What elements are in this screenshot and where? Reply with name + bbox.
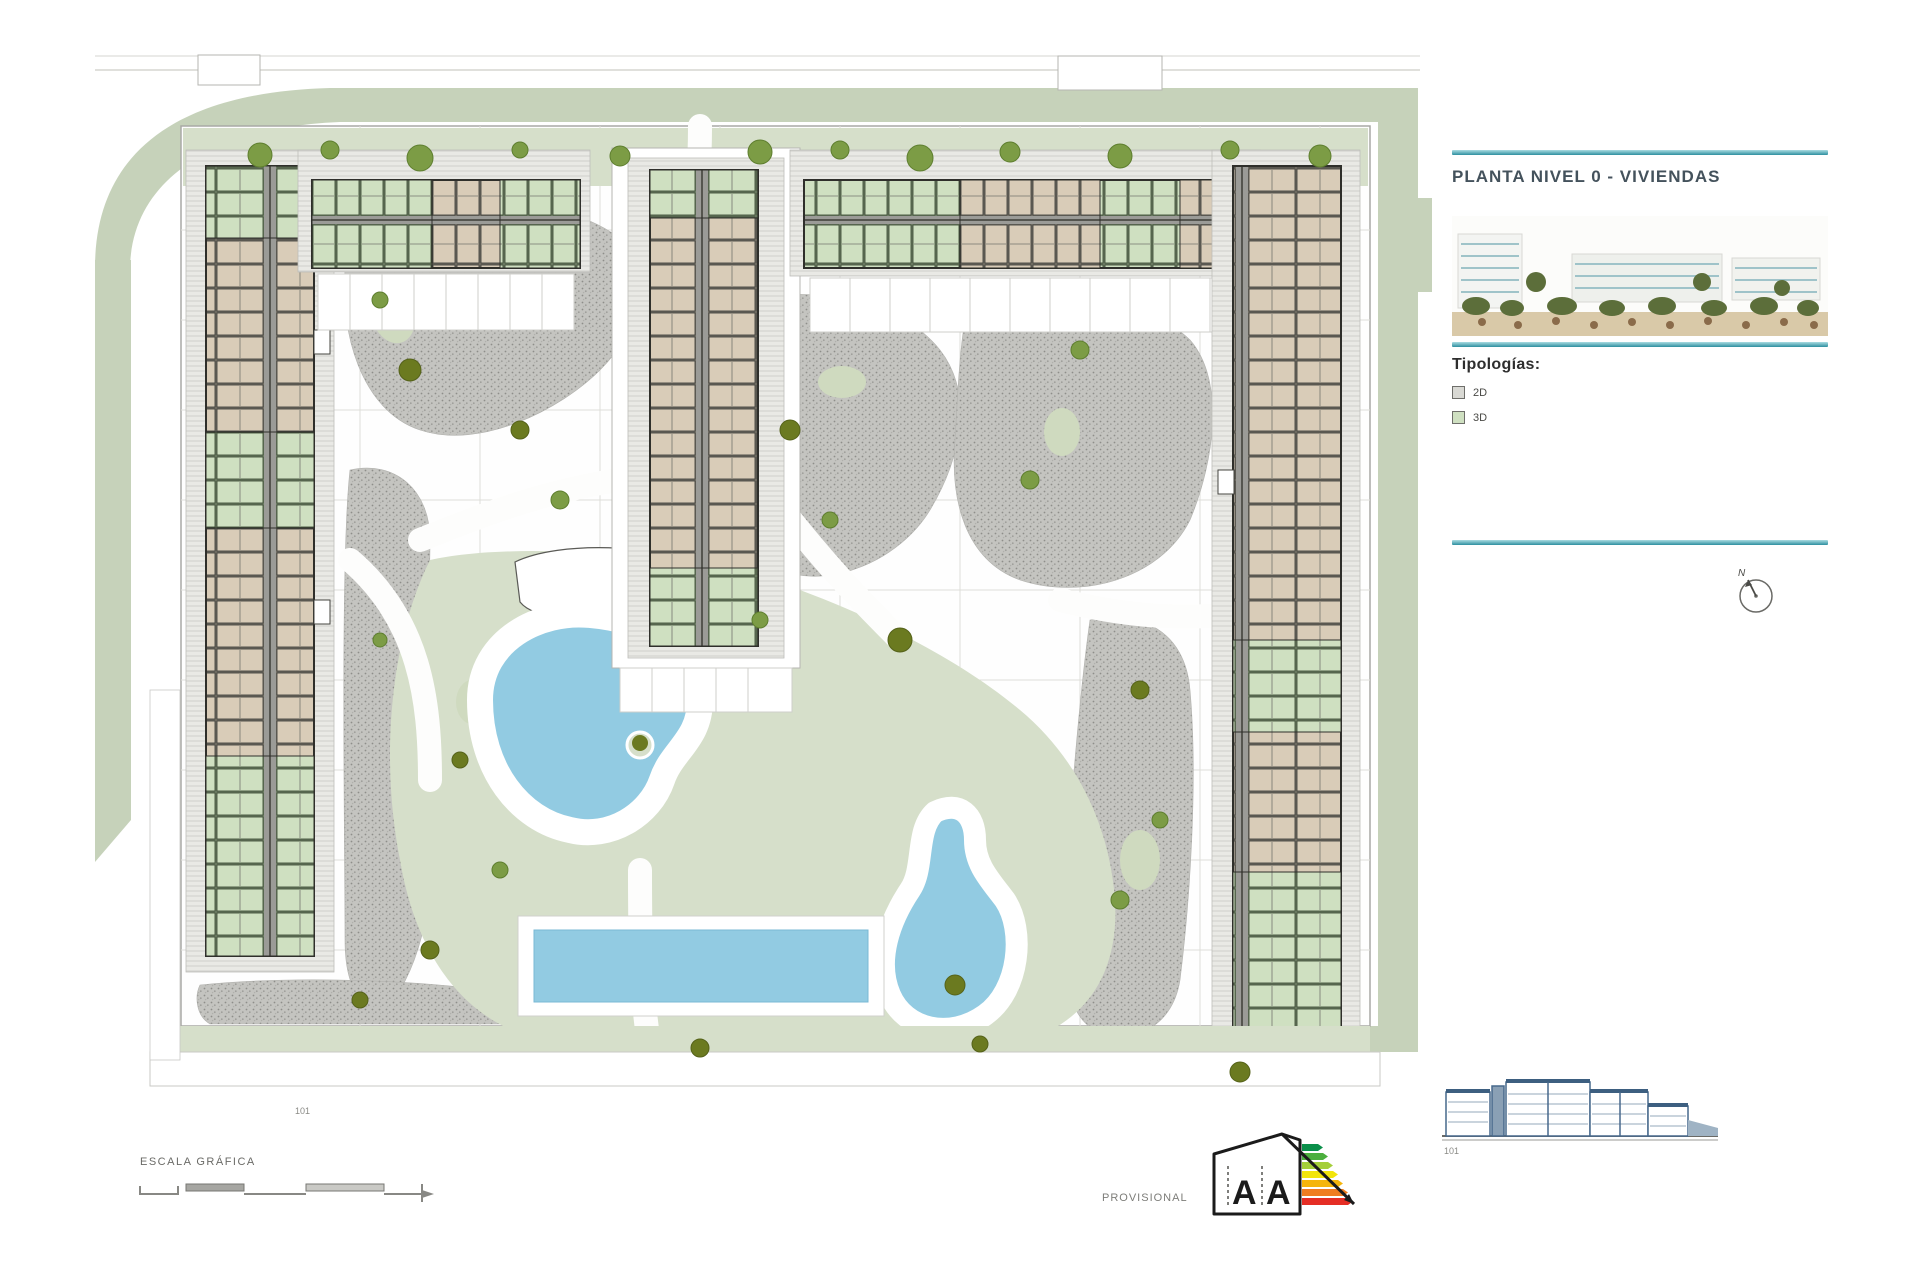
perimeter-road [95, 56, 1420, 70]
plan-ref-label: 101 [295, 1106, 310, 1116]
energy-letter-1: A [1232, 1174, 1257, 1212]
render-thumbnail [1452, 216, 1828, 336]
legend-heading: Tipologías: [1452, 356, 1540, 374]
title-rule-middle [1452, 342, 1828, 347]
page-title: PLANTA NIVEL 0 - VIVIENDAS [1452, 167, 1720, 187]
building-wing-top-right [790, 150, 1260, 332]
islet-tree [632, 735, 648, 751]
building-wing-right [1212, 150, 1360, 1052]
energy-letter-2: A [1266, 1174, 1291, 1212]
lap-pool [518, 916, 884, 1016]
boundary-notches [198, 55, 1162, 90]
north-compass-icon: N [1726, 564, 1788, 626]
building-wing-top-left [298, 150, 590, 330]
bottom-road [150, 1026, 1380, 1086]
title-rule-bottom [1452, 540, 1828, 545]
provisional-label: PROVISIONAL [1102, 1192, 1188, 1204]
elevation-ref-label: 101 [1444, 1146, 1459, 1156]
legend-item-3d: 3D [1452, 411, 1487, 424]
legend-label-2d: 2D [1473, 387, 1487, 399]
building-elevation: 101 [1436, 1062, 1726, 1162]
site-plan: 101 [0, 0, 1460, 1280]
legend-swatch-2d [1452, 386, 1465, 399]
legend-label-3d: 3D [1473, 412, 1487, 424]
west-road [150, 690, 180, 1060]
title-rule-top [1452, 150, 1828, 155]
legend-swatch-3d [1452, 411, 1465, 424]
energy-certificate-icon: A A [1208, 1126, 1360, 1220]
building-wing-left [186, 150, 334, 972]
scale-label: ESCALA GRÁFICA [140, 1156, 256, 1168]
page: { "title_block": { "title": "PLANTA NIVE… [0, 0, 1920, 1280]
scale-bar [134, 1172, 444, 1208]
legend-item-2d: 2D [1452, 386, 1487, 399]
building-wing-center [612, 148, 800, 712]
compass-north-label: N [1738, 568, 1746, 579]
